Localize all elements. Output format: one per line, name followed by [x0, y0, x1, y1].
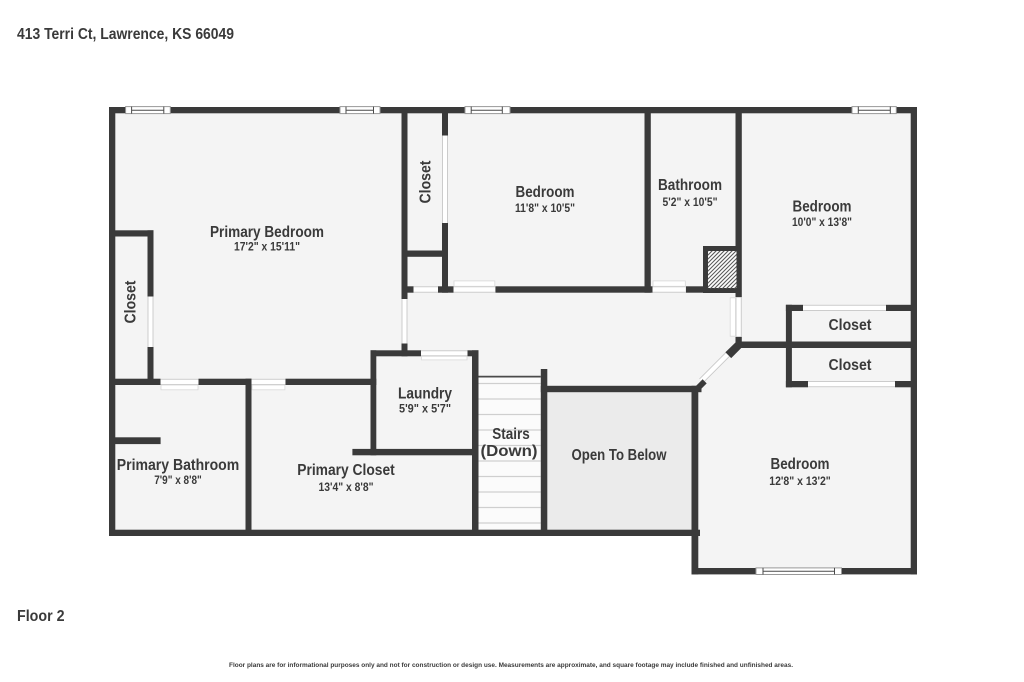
svg-text:11'8" x 10'5": 11'8" x 10'5": [515, 201, 575, 215]
svg-text:413 Terri Ct, Lawrence, KS 660: 413 Terri Ct, Lawrence, KS 66049: [17, 26, 234, 43]
svg-text:Bedroom: Bedroom: [516, 184, 575, 201]
svg-text:Stairs: Stairs: [492, 426, 530, 443]
svg-text:Primary Bedroom: Primary Bedroom: [210, 224, 324, 241]
svg-text:Bedroom: Bedroom: [771, 456, 830, 473]
svg-text:Open To Below: Open To Below: [572, 447, 668, 464]
svg-text:Laundry: Laundry: [398, 386, 452, 403]
svg-text:Bedroom: Bedroom: [793, 199, 852, 216]
svg-text:10'0" x 13'8": 10'0" x 13'8": [792, 215, 852, 229]
svg-text:12'8" x 13'2": 12'8" x 13'2": [769, 474, 831, 488]
svg-text:Closet: Closet: [829, 317, 872, 334]
svg-text:(Down): (Down): [481, 443, 538, 460]
svg-text:17'2" x 15'11": 17'2" x 15'11": [234, 240, 300, 254]
svg-text:Floor plans are for informatio: Floor plans are for informational purpos…: [229, 662, 793, 669]
svg-text:7'9" x 8'8": 7'9" x 8'8": [154, 473, 202, 487]
svg-text:Closet: Closet: [418, 161, 435, 204]
svg-text:Closet: Closet: [829, 357, 872, 374]
svg-text:Floor 2: Floor 2: [17, 608, 65, 625]
svg-text:5'9" x 5'7": 5'9" x 5'7": [399, 402, 451, 416]
svg-text:Closet: Closet: [123, 281, 140, 324]
svg-text:Bathroom: Bathroom: [658, 177, 722, 194]
svg-text:13'4" x 8'8": 13'4" x 8'8": [319, 480, 374, 494]
svg-text:5'2" x 10'5": 5'2" x 10'5": [663, 195, 718, 209]
svg-text:Primary Closet: Primary Closet: [297, 462, 395, 479]
svg-text:Primary Bathroom: Primary Bathroom: [117, 457, 240, 474]
